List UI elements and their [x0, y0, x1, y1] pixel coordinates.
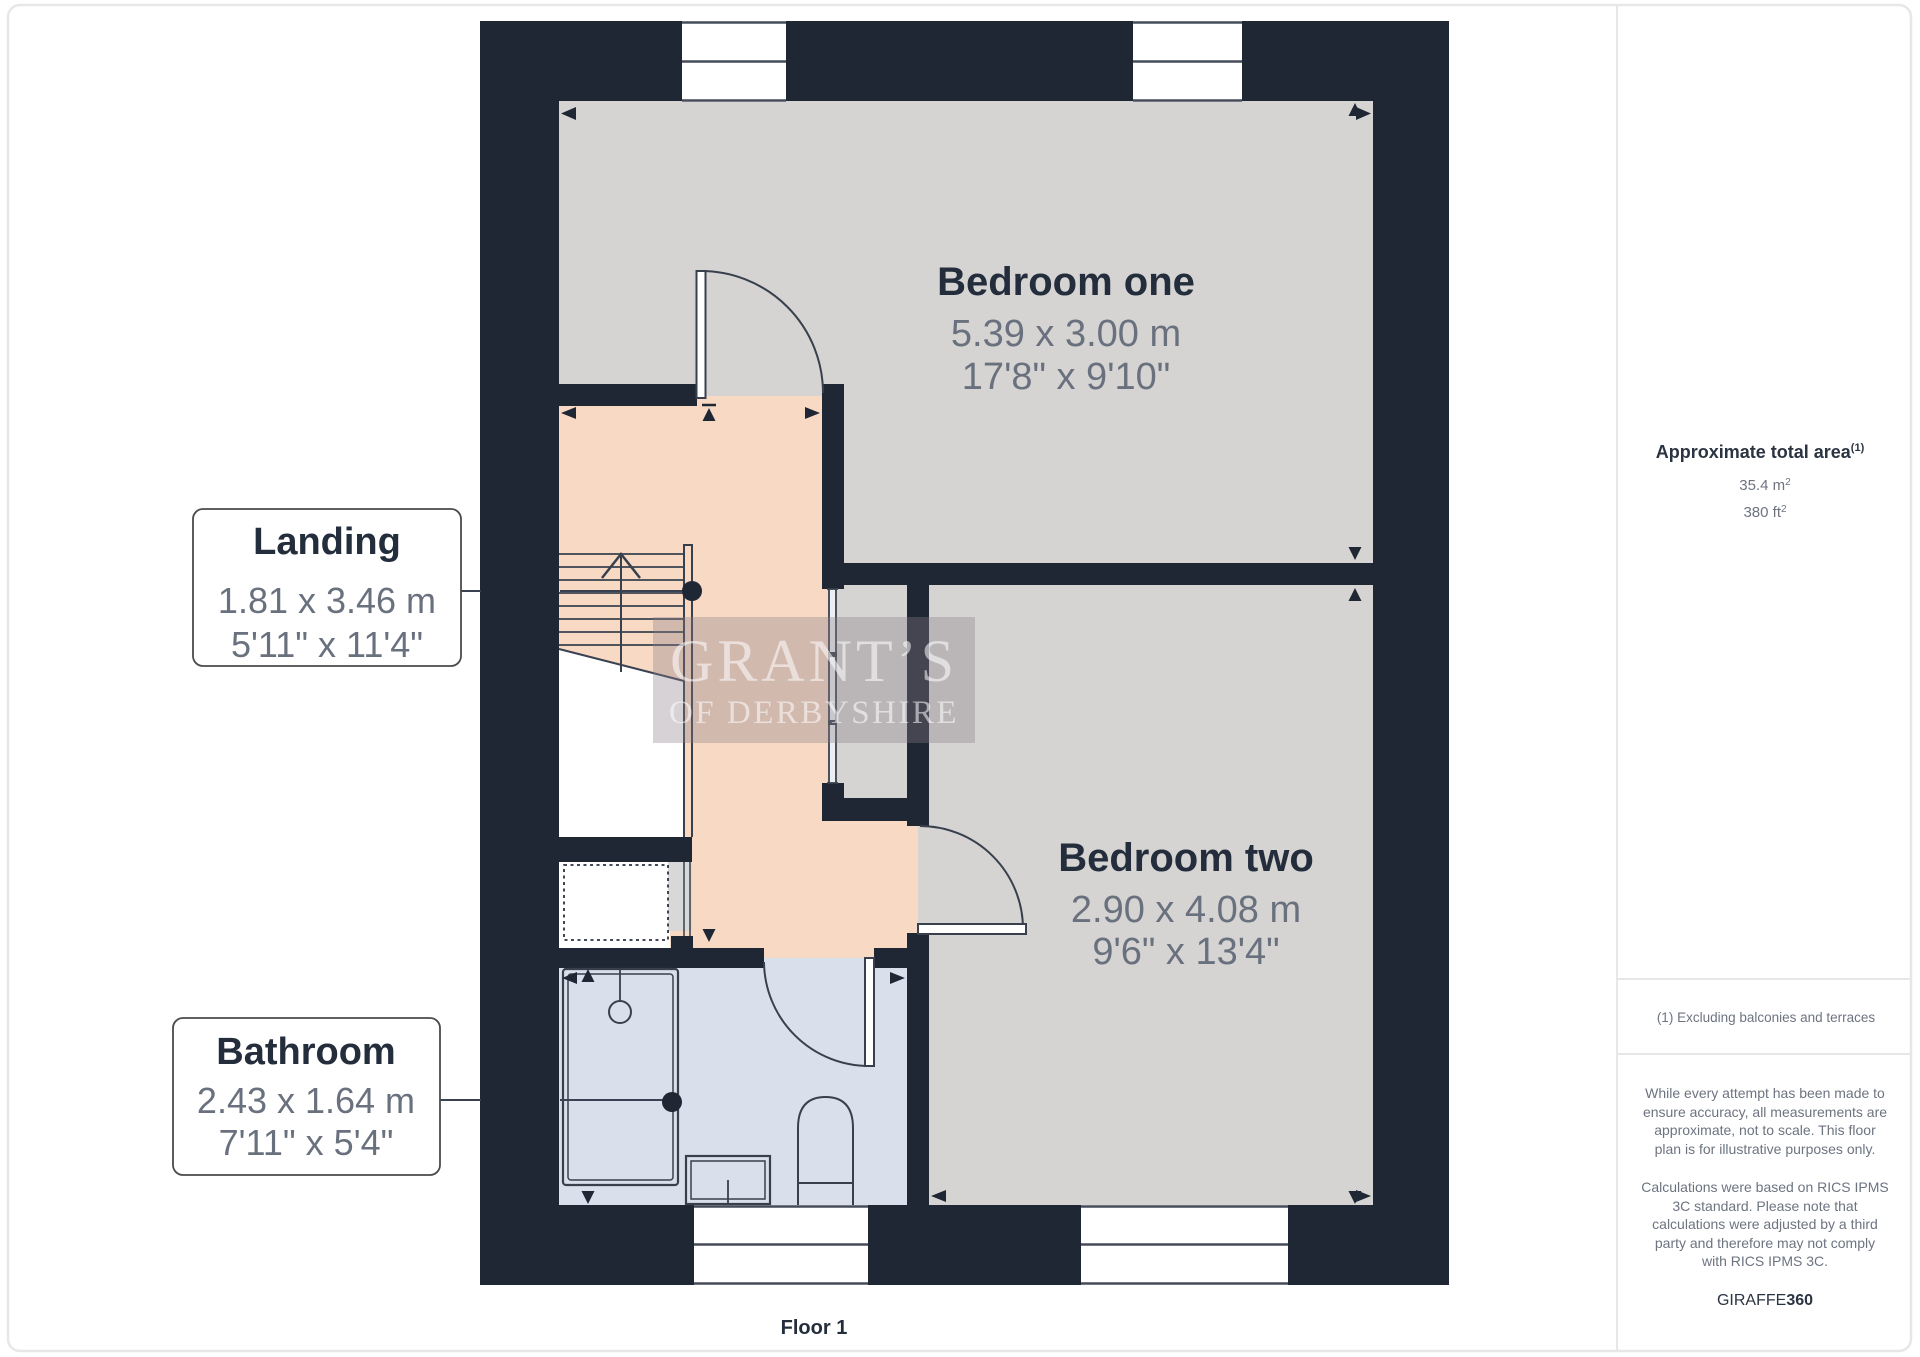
svg-text:3C standard. Please note that: 3C standard. Please note that	[1672, 1198, 1857, 1214]
svg-text:Approximate total area(1): Approximate total area(1)	[1656, 442, 1865, 462]
svg-text:with RICS IPMS 3C.: with RICS IPMS 3C.	[1701, 1253, 1828, 1269]
svg-text:(1) Excluding balconies and te: (1) Excluding balconies and terraces	[1657, 1010, 1876, 1025]
svg-text:GRANT’S: GRANT’S	[670, 628, 958, 694]
svg-text:Floor 1: Floor 1	[781, 1317, 848, 1339]
svg-text:9'6" x 13'4": 9'6" x 13'4"	[1092, 931, 1279, 973]
svg-text:380 ft2: 380 ft2	[1743, 504, 1787, 521]
svg-text:While every attempt has been m: While every attempt has been made to	[1645, 1085, 1885, 1101]
svg-text:1.81 x 3.46 m: 1.81 x 3.46 m	[218, 580, 436, 621]
svg-text:party and therefore may not co: party and therefore may not comply	[1655, 1235, 1875, 1251]
svg-text:35.4 m2: 35.4 m2	[1739, 477, 1791, 494]
svg-text:Bedroom two: Bedroom two	[1058, 836, 1314, 880]
svg-text:2.90 x 4.08 m: 2.90 x 4.08 m	[1071, 889, 1301, 931]
svg-text:2.43 x 1.64 m: 2.43 x 1.64 m	[197, 1080, 415, 1121]
svg-text:OF DERBYSHIRE: OF DERBYSHIRE	[669, 695, 959, 731]
svg-text:calculations were adjusted by: calculations were adjusted by a third	[1652, 1216, 1878, 1232]
svg-text:Bedroom one: Bedroom one	[937, 260, 1195, 304]
svg-text:Bathroom: Bathroom	[216, 1031, 395, 1073]
svg-text:approximate, not to scale. Thi: approximate, not to scale. This floor	[1654, 1122, 1876, 1138]
svg-text:plan is for illustrative purpo: plan is for illustrative purposes only.	[1655, 1141, 1876, 1157]
svg-text:7'11" x 5'4": 7'11" x 5'4"	[219, 1122, 394, 1163]
svg-text:17'8" x 9'10": 17'8" x 9'10"	[962, 356, 1170, 398]
svg-text:Calculations were based on RIC: Calculations were based on RICS IPMS	[1641, 1179, 1888, 1195]
svg-text:5.39 x 3.00 m: 5.39 x 3.00 m	[951, 313, 1181, 355]
svg-text:ensure accuracy, all measureme: ensure accuracy, all measurements are	[1643, 1104, 1887, 1120]
svg-text:5'11" x 11'4": 5'11" x 11'4"	[231, 624, 423, 665]
svg-text:GIRAFFE360: GIRAFFE360	[1717, 1292, 1813, 1309]
svg-text:Landing: Landing	[253, 521, 401, 563]
